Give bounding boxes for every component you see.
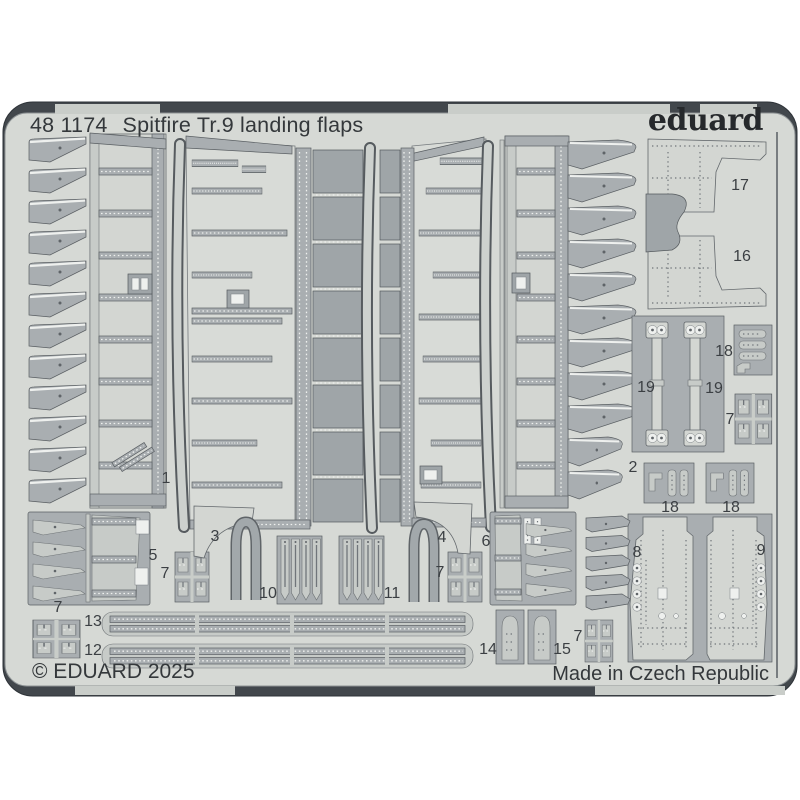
part-6-cluster — [490, 512, 576, 605]
part-11-block — [339, 536, 384, 604]
part-1-structure — [90, 133, 166, 508]
part-14-box — [496, 610, 524, 664]
part-12-strip — [102, 644, 473, 668]
part-18-slat-box — [734, 325, 772, 375]
part-13-strip — [102, 612, 473, 636]
fret-photo: 48 1174Spitfire Tr.9 landing flaps eduar… — [0, 0, 800, 800]
part-9-panel — [707, 517, 767, 660]
part-10-block — [277, 536, 322, 604]
part-19-group — [632, 316, 724, 452]
part-8-panel — [630, 517, 693, 660]
part-3-flap — [177, 136, 372, 529]
part-8-9-panels — [628, 514, 772, 662]
part-5-cluster — [28, 512, 150, 605]
fret-artwork — [0, 0, 800, 800]
part-15-box — [528, 610, 556, 664]
